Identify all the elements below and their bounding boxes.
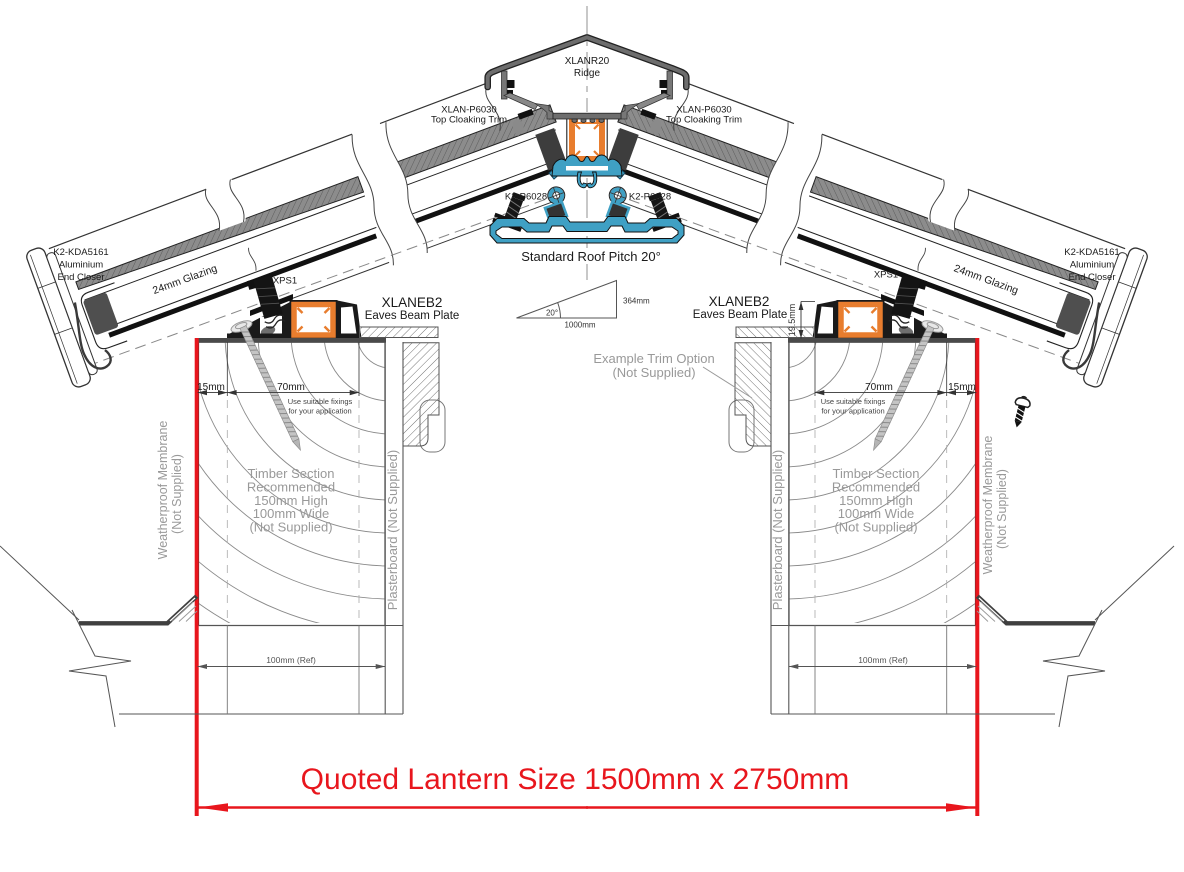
svg-text:XPS1: XPS1 (874, 270, 898, 281)
svg-text:Top Cloaking Trim: Top Cloaking Trim (431, 115, 507, 126)
svg-text:K2-KDA5161: K2-KDA5161 (53, 247, 108, 258)
svg-text:Plasterboard (Not Supplied): Plasterboard (Not Supplied) (385, 450, 400, 610)
svg-text:(Not Supplied): (Not Supplied) (170, 454, 184, 534)
svg-text:Standard Roof Pitch 20°: Standard Roof Pitch 20° (521, 249, 661, 264)
svg-text:100mm (Ref): 100mm (Ref) (266, 655, 316, 665)
svg-text:for your application: for your application (288, 407, 351, 416)
svg-text:70mm: 70mm (865, 382, 893, 393)
svg-text:Ridge: Ridge (574, 68, 601, 79)
svg-text:Eaves Beam Plate: Eaves Beam Plate (693, 309, 788, 321)
svg-text:Aluminium: Aluminium (1070, 260, 1114, 271)
svg-text:XLANEB2: XLANEB2 (382, 295, 443, 310)
svg-text:Top Cloaking Trim: Top Cloaking Trim (666, 115, 742, 126)
svg-text:for your application: for your application (821, 407, 884, 416)
svg-text:19.5mm: 19.5mm (787, 304, 797, 337)
svg-text:Aluminium: Aluminium (59, 260, 103, 271)
svg-text:24mm Glazing: 24mm Glazing (952, 262, 1020, 296)
svg-text:Weatherproof Membrane: Weatherproof Membrane (981, 436, 995, 575)
svg-text:Weatherproof Membrane: Weatherproof Membrane (156, 421, 170, 560)
svg-text:15mm: 15mm (197, 382, 225, 393)
svg-text:(Not Supplied): (Not Supplied) (249, 520, 332, 535)
svg-text:Eaves Beam Plate: Eaves Beam Plate (365, 310, 460, 322)
svg-text:Use suitable fixings: Use suitable fixings (288, 397, 353, 406)
svg-text:K2-P6028: K2-P6028 (505, 192, 547, 203)
svg-text:K2-KDA5161: K2-KDA5161 (1064, 247, 1119, 258)
svg-text:Quoted Lantern Size 1500mm x 2: Quoted Lantern Size 1500mm x 2750mm (301, 763, 850, 796)
svg-text:XLANEB2: XLANEB2 (709, 294, 770, 309)
svg-text:1000mm: 1000mm (564, 321, 595, 330)
svg-text:End Closer: End Closer (1069, 272, 1116, 283)
svg-text:24mm Glazing: 24mm Glazing (151, 262, 219, 296)
svg-text:XLANR20: XLANR20 (565, 56, 610, 67)
svg-text:Plasterboard (Not Supplied): Plasterboard (Not Supplied) (770, 450, 785, 610)
svg-text:K2-P6028: K2-P6028 (629, 192, 671, 203)
svg-text:70mm: 70mm (277, 382, 305, 393)
svg-text:20°: 20° (546, 309, 558, 318)
svg-text:364mm: 364mm (623, 297, 650, 306)
svg-text:(Not Supplied): (Not Supplied) (995, 469, 1009, 549)
svg-text:End Closer: End Closer (58, 272, 105, 283)
svg-text:15mm: 15mm (948, 382, 976, 393)
svg-text:Example Trim Option: Example Trim Option (593, 351, 714, 366)
svg-text:(Not Supplied): (Not Supplied) (834, 520, 917, 535)
svg-text:(Not Supplied): (Not Supplied) (612, 365, 695, 380)
svg-text:Use suitable fixings: Use suitable fixings (821, 397, 886, 406)
svg-text:XPS1: XPS1 (273, 276, 297, 287)
svg-text:100mm (Ref): 100mm (Ref) (858, 655, 908, 665)
